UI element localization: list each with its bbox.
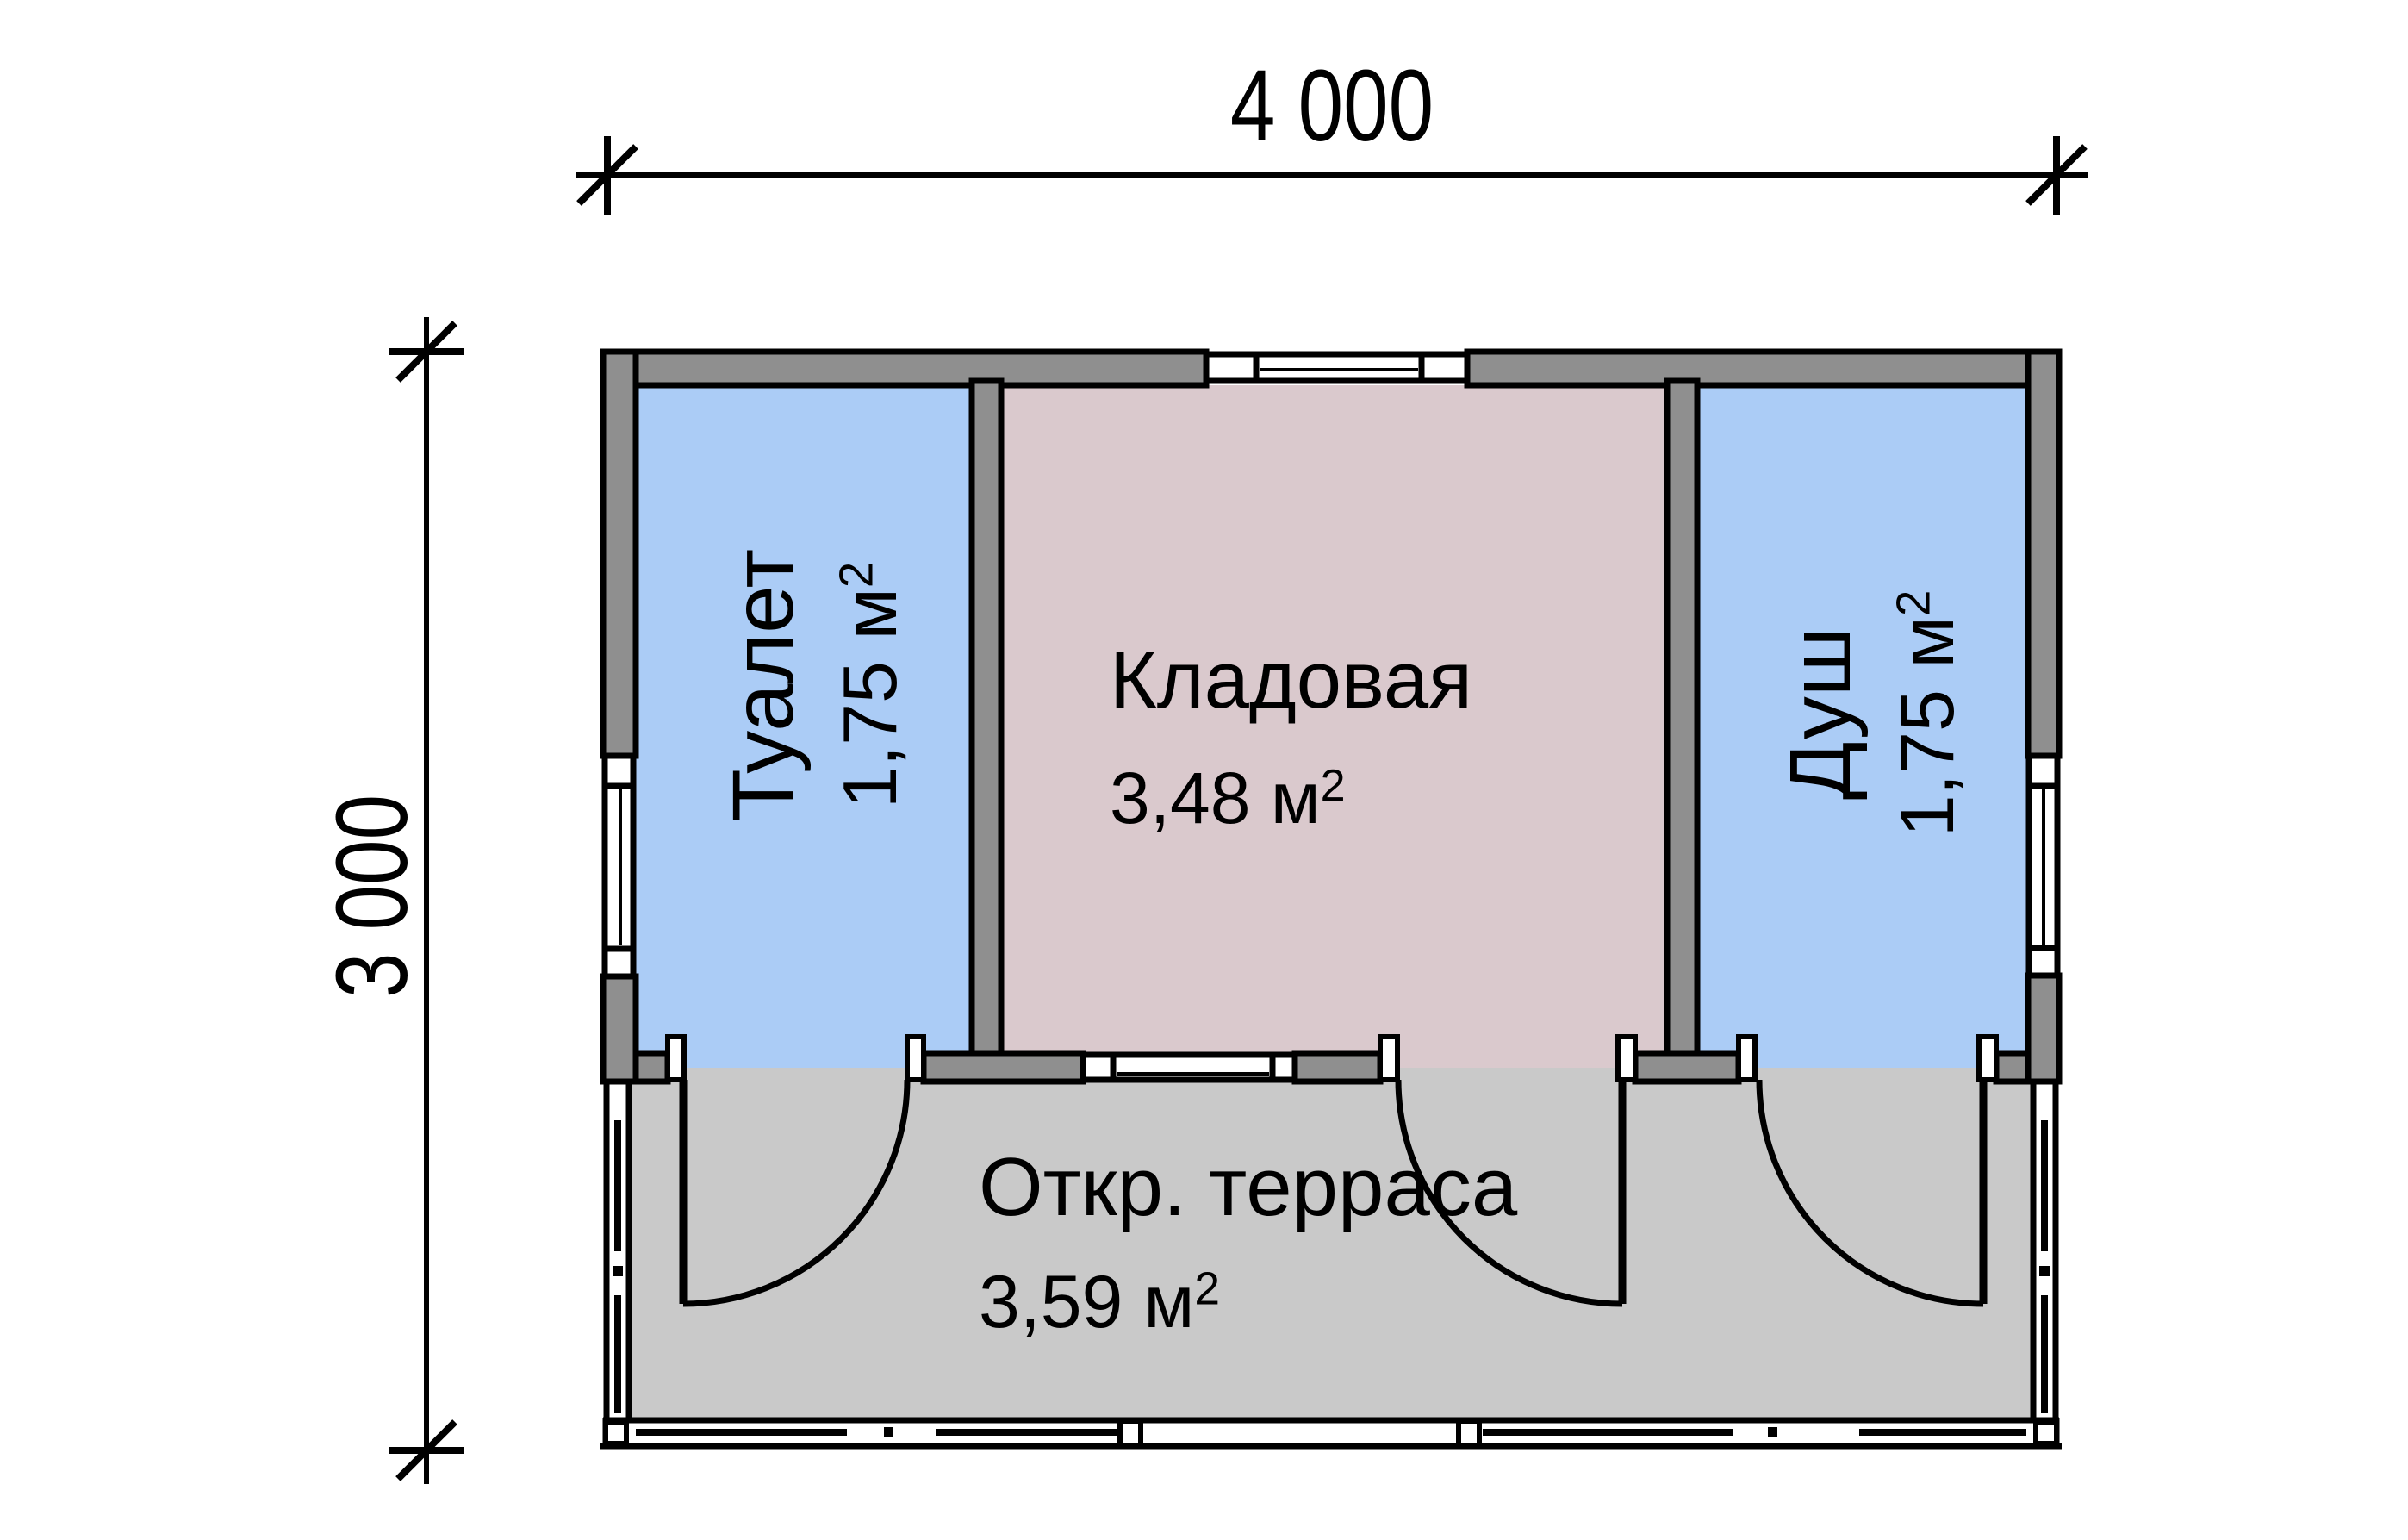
room-label-terrace: Откр. терраса 3,59 м2 <box>979 1146 1517 1339</box>
wall-right-upper <box>2028 352 2059 756</box>
storage-area: 3,48 м2 <box>1110 762 1472 834</box>
terrace-railing-right <box>2033 1080 2056 1420</box>
dimension-height-label: 3 000 <box>320 689 424 1103</box>
terrace-area: 3,59 м2 <box>979 1265 1517 1339</box>
door-jamb <box>668 1037 684 1080</box>
shower-name: Душ <box>1777 590 1864 838</box>
room-label-toilet: Туалет 1,75 м2 <box>720 549 908 821</box>
terrace-name: Откр. терраса <box>979 1146 1517 1229</box>
railing-post <box>1459 1421 1479 1445</box>
room-label-storage: Кладовая 3,48 м2 <box>1110 639 1472 834</box>
wall-right-lower <box>2028 976 2059 1082</box>
railing-corner-post <box>2036 1423 2056 1443</box>
wall-bottom-stub-4 <box>1635 1053 1739 1082</box>
door-jamb <box>907 1037 924 1080</box>
storage-doorway-terrace <box>1397 1068 1618 1080</box>
dimension-width-label: 4 000 <box>1125 55 1539 157</box>
wall-bottom-stub-1 <box>636 1053 668 1082</box>
door-jamb <box>1979 1037 1996 1080</box>
shower-area: 1,75 м2 <box>1889 590 1965 838</box>
window-right <box>2029 756 2057 976</box>
wall-top-right-segment <box>1467 352 2059 385</box>
toilet-area: 1,75 м2 <box>832 549 908 821</box>
railing-post <box>1120 1421 1141 1445</box>
toilet-name: Туалет <box>720 549 806 821</box>
toilet-doorway-floor <box>683 1053 907 1068</box>
storage-doorway-floor <box>1397 1053 1618 1068</box>
wall-bottom-stub-5 <box>1996 1053 2028 1082</box>
wall-bottom-stub-2 <box>924 1053 1083 1082</box>
railing-corner-post <box>606 1423 626 1443</box>
wall-top-left-segment <box>603 352 1206 385</box>
shower-doorway-floor <box>1755 1053 1979 1068</box>
partition-storage-shower <box>1667 381 1697 1082</box>
toilet-doorway-terrace <box>683 1068 907 1080</box>
room-label-shower: Душ 1,75 м2 <box>1777 590 1965 838</box>
shower-doorway-terrace <box>1755 1068 1979 1080</box>
door-jamb <box>1739 1037 1755 1080</box>
door-jamb <box>1380 1037 1397 1080</box>
terrace-railing-left <box>607 1080 629 1420</box>
wall-left-upper <box>603 352 636 756</box>
floor-plan-canvas: 4 000 3 000 Туалет 1,75 м2 Кладовая 3,48… <box>0 0 2408 1540</box>
window-left <box>605 756 633 976</box>
window-storage-bottom <box>1083 1055 1295 1080</box>
storage-name: Кладовая <box>1110 639 1472 720</box>
door-jamb <box>1618 1037 1635 1080</box>
wall-left-lower <box>603 976 636 1082</box>
wall-bottom-stub-3 <box>1295 1053 1380 1082</box>
terrace-railing-bottom <box>600 1418 2062 1449</box>
window-top <box>1206 354 1467 381</box>
partition-toilet-storage <box>972 381 1001 1082</box>
